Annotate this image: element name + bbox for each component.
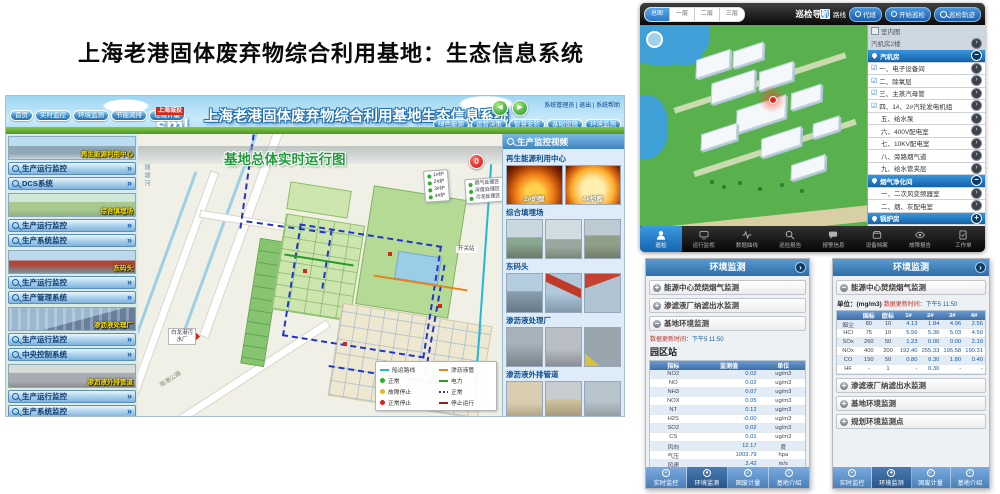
line2-cell: 0.00: [919, 339, 941, 345]
start-inspection-button[interactable]: 开始巡检: [885, 7, 931, 22]
screenshot-canvas: 上海老港固体废弃物综合利用基地：生态信息系统 首页实时监控环境监测节能减排垃圾计…: [0, 0, 1000, 494]
desktop-module-nav: 绿色能源运营决策智慧安防基础设施环境监测: [433, 119, 621, 130]
eu-std-cell: 1: [878, 366, 897, 372]
page-title: 上海老港固体废弃物综合利用基地：生态信息系统: [78, 36, 584, 68]
table-row: NO 0.02 ug/m3: [650, 379, 805, 388]
collapse-icon[interactable]: [971, 175, 982, 186]
camera-thumbnail[interactable]: [584, 219, 621, 259]
circle-arrow-icon: [971, 125, 982, 136]
table-row: NOX 0.05 ug/m3: [650, 397, 805, 406]
magnifier-icon: [12, 351, 19, 358]
env-monitor-panel-flue-gas: 环境监测› 能源中心焚烧烟气监测 单位：(mg/m3) 数据更新时间：下午5 1…: [832, 258, 990, 489]
checkpoint-row[interactable]: 六、400V配电室: [868, 125, 985, 138]
segment-option[interactable]: 三层: [720, 8, 744, 21]
camera-thumbnail[interactable]: [506, 219, 543, 259]
accordion-planned-points[interactable]: 规划环境监测点: [836, 414, 986, 429]
checkpoint-row[interactable]: 二、烟、灰配电室: [868, 200, 985, 213]
magnifier-icon: [12, 393, 19, 400]
chevron-right-icon: »: [127, 221, 132, 230]
eu-std-cell: 10: [878, 321, 897, 327]
status-dot-icon: [468, 182, 472, 186]
brand-abbr: sml: [156, 117, 200, 134]
expand-icon: [653, 302, 661, 310]
facility-photo: 再生能源利用中心: [8, 136, 136, 160]
expand-icon[interactable]: [971, 213, 982, 224]
chevron-right-icon: »: [127, 278, 132, 287]
nav-pill[interactable]: 节能减排: [111, 110, 147, 121]
mobile-topbar: 总图 一层 二层 三层 巡检导航 ✓ 路线 代班 开始巡检 巡检轨迹: [640, 3, 985, 25]
line1-cell: 5.56: [898, 330, 920, 336]
camera-thumbnail[interactable]: [545, 273, 582, 313]
map-label-switch-station: 开关站: [456, 246, 477, 253]
camera-group-title: 再生能源利用中心: [506, 153, 621, 164]
value-cell: 1003.79: [697, 452, 762, 458]
prev-arrow-button[interactable]: ◀: [492, 100, 508, 116]
panel-title: 环境监测: [893, 262, 929, 272]
boiler-status-box: 1#炉2#炉3#炉4#炉: [423, 169, 450, 203]
accordion-base-env[interactable]: 基地环境监测: [649, 316, 806, 331]
next-arrow-button[interactable]: ▶: [512, 100, 528, 116]
table-row: SO2 0.02 ug/m3: [650, 424, 805, 433]
collapse-icon[interactable]: [971, 50, 982, 61]
circle-arrow-icon: [971, 100, 982, 111]
value-cell: 0.05: [697, 398, 762, 404]
cloud-icon: [887, 469, 895, 477]
camera-thumbnail[interactable]: [584, 273, 621, 313]
tab-base-intro[interactable]: 基地介绍: [769, 467, 809, 488]
chevron-right-icon: »: [127, 164, 132, 173]
legend-label: 正常: [388, 376, 400, 385]
camera-thumbnail[interactable]: [545, 219, 582, 259]
accordion-flue-gas[interactable]: 能源中心焚烧烟气监测: [836, 280, 986, 295]
legend-item: 故障停止: [380, 387, 433, 396]
sidebar-button[interactable]: 生产系统监控»: [8, 405, 136, 416]
legend-swatch: [380, 369, 389, 371]
sidebar-button[interactable]: 生产系统监控»: [8, 234, 136, 247]
legend-swatch: [439, 402, 448, 404]
circle-arrow-icon: [971, 200, 982, 211]
indicator-cell: 气压: [650, 451, 697, 460]
unit-cell: ug/m3: [762, 425, 805, 431]
circle-arrow-icon: [971, 188, 982, 199]
tab-operation-monitor[interactable]: 运行监视: [682, 226, 725, 252]
facility-photo: 渗沥液处理厂: [8, 307, 136, 331]
camera-thumbnail[interactable]: [584, 327, 621, 367]
chevron-right-icon: »: [127, 179, 132, 188]
tab-waste-metering[interactable]: 固废计量: [912, 467, 951, 488]
check-icon: [744, 469, 752, 477]
table-row: H2S -0.00 ug/m3: [650, 415, 805, 424]
sidebar-button-label: 生产系统监控: [22, 235, 67, 246]
camera-thumbnail[interactable]: [545, 327, 582, 367]
line4-cell: 2.10: [963, 339, 985, 345]
pollutant-cell: NOx: [837, 348, 859, 354]
location-pin-icon: [871, 215, 878, 222]
checked-checkbox-icon: ☑: [871, 102, 877, 110]
area-row-boiler-house[interactable]: 锅炉房: [868, 213, 985, 226]
pollutant-cell: SOx: [837, 339, 859, 345]
camera-thumbnail[interactable]: 4#炉膛: [565, 165, 622, 205]
unit-cell: ug/m3: [762, 398, 805, 404]
tab-work-order[interactable]: 工作单: [942, 226, 985, 252]
inspector-location-marker: [769, 96, 777, 104]
legend-swatch: [380, 400, 385, 405]
line1-cell: 4.13: [898, 321, 920, 327]
legend-label: 船运路线: [392, 365, 415, 374]
panel-header: 环境监测›: [833, 259, 989, 276]
nav-pill[interactable]: 智慧安防: [509, 119, 545, 130]
value-cell: 0.02: [697, 425, 762, 431]
sidebar-button[interactable]: 中央控制系统»: [8, 348, 136, 361]
camera-thumbnail-label: 2#炉膛: [507, 193, 562, 203]
nav-pill[interactable]: 环境监测: [585, 119, 621, 130]
nav-pill[interactable]: 环境监测: [73, 110, 109, 121]
panel-footer-tabs: 实时监控 环境监测 固废计量 基地介绍: [646, 467, 809, 488]
chevron-right-icon: »: [127, 392, 132, 401]
sidebar-button[interactable]: 生产运行监控»: [8, 162, 136, 175]
national-std-cell: -: [859, 366, 878, 372]
panel-title: 环境监测: [709, 262, 745, 272]
inspection-track-button[interactable]: 巡检轨迹: [934, 7, 981, 22]
checkpoint-row[interactable]: ☑三、主蒸汽母管: [868, 88, 985, 101]
unit-cell: ug/m3: [762, 407, 805, 413]
line2-cell: 0.30: [919, 366, 941, 372]
line3-cell: 0.00: [941, 339, 963, 345]
dot-icon: [855, 11, 861, 17]
checkpoint-row[interactable]: 一、二次风变频器室: [868, 188, 985, 201]
route-checkbox-label: 路线: [833, 9, 846, 19]
status-dot-icon: [469, 196, 473, 200]
camera-thumbnail-label: 4#炉膛: [566, 193, 621, 203]
mobile-tabbar: 巡检 运行监视 数据曲线 巡检报告 报警信息 设备档案 故障报告 工作单: [640, 226, 985, 252]
legend-label: 正常停止: [388, 398, 411, 407]
line2-cell: 1.84: [919, 321, 941, 327]
tab-waste-metering[interactable]: 固废计量: [728, 467, 769, 488]
sidebar-button-label: 生产运行监控: [22, 163, 67, 174]
table-row: SOx 260 50 1.23 0.00 0.00 2.10: [837, 338, 985, 347]
line4-cell: 4.50: [963, 330, 985, 336]
compass-icon[interactable]: [646, 31, 663, 48]
accordion-flue-gas[interactable]: 能源中心焚烧烟气监测: [649, 280, 806, 295]
map-title: 基地总体实时运行图: [224, 148, 346, 168]
checkpoint-row[interactable]: ☑一、电子设备间: [868, 63, 985, 76]
facility-label: 渗沥液外排管道: [88, 376, 134, 386]
chevron-right-icon: »: [127, 335, 132, 344]
national-std-cell: 260: [859, 339, 878, 345]
unit-cell: ug/m3: [762, 371, 805, 377]
legend-item: 船运路线: [380, 365, 433, 374]
checked-checkbox-icon: ☑: [871, 77, 877, 85]
line1-cell: -: [898, 366, 920, 372]
sidebar-button[interactable]: 生产运行监控»: [8, 390, 136, 403]
pollutant-cell: HF: [837, 366, 859, 372]
expand-icon: [840, 400, 848, 408]
status-dot-icon: [469, 189, 473, 193]
env-monitor-panel-station: 环境监测› 能源中心焚烧烟气监测 渗滤液厂纳滤出水监测 基地环境监测 数据更新时…: [645, 258, 810, 489]
station-name: 园区站: [650, 345, 805, 358]
segment-option[interactable]: 一层: [670, 8, 695, 21]
base-realtime-map: 随塘河 南港公路 白龙港污水厂 开关站 基地总体实时运行图 0 1#炉2#炉3#…: [138, 134, 502, 416]
magnifier-icon: [12, 180, 19, 187]
accordion-nanofiltration[interactable]: 渗滤液厂纳滤出水监测: [836, 378, 986, 393]
value-cell: -0.00: [697, 416, 762, 422]
accordion-base-env[interactable]: 基地环境监测: [836, 396, 986, 411]
sidebar-button-label: 生产运行监控: [22, 334, 67, 345]
tab-data-curve[interactable]: 数据曲线: [725, 226, 768, 252]
status-dot-icon: [429, 195, 433, 199]
unit-cell: ug/m3: [762, 380, 805, 386]
circle-arrow-icon: [971, 63, 982, 74]
map-label-river: 随塘河: [142, 164, 151, 188]
sidebar-button-label: 生产运行监控: [22, 277, 67, 288]
nav-pill[interactable]: 绿色能源: [433, 119, 469, 130]
sidebar-button[interactable]: 生产运行监控»: [8, 219, 136, 232]
legend-item: 电力: [439, 376, 492, 385]
sidebar-button-label: 生产运行监控: [22, 391, 67, 402]
area-row-turbine-hall[interactable]: 汽机房: [868, 50, 985, 63]
line2-cell: 0.30: [919, 357, 941, 363]
indicator-cell: NO: [650, 380, 697, 386]
sidebar-section-pipeline: 渗沥液外排管道 生产运行监控» 生产系统监控»: [8, 364, 136, 416]
legend-item: 渗沥液管: [439, 365, 492, 374]
tab-inspection-report[interactable]: 巡检报告: [769, 226, 812, 252]
line1-cell: 1.23: [898, 339, 920, 345]
sidebar-section-landfill: 综合填埋场 生产运行监控» 生产系统监控»: [8, 193, 136, 247]
header-arrows: ◀ ▶: [492, 100, 528, 116]
pollutant-cell: 烟尘: [837, 320, 859, 329]
forward-arrow-button[interactable]: ›: [795, 262, 806, 273]
chevron-right-icon: »: [127, 407, 132, 416]
view-segmented-control: 总图 一层 二层 三层: [644, 7, 745, 22]
eu-std-cell: 50: [878, 339, 897, 345]
desktop-header: 首页实时监控环境监测节能减排垃圾计量 上海城投 sml 上海老港固体废弃物综合利…: [6, 96, 624, 134]
legend-swatch: [439, 391, 448, 393]
camera-groups: 再生能源利用中心 2#炉膛 4#炉膛 综合填埋场 东码头: [503, 149, 624, 416]
circle-arrow-icon: [971, 163, 982, 174]
flue-gas-table: 国标 欧标 1# 2# 3# 4# 烟尘 80 10 4.13: [836, 310, 986, 375]
value-cell: 0.12: [697, 407, 762, 413]
tab-alarm-info[interactable]: 报警信息: [812, 226, 855, 252]
tab-inspection[interactable]: 巡检: [640, 226, 682, 252]
indicator-cell: NT: [650, 407, 697, 413]
circle-arrow-icon: [971, 38, 982, 49]
line3-cell: -: [941, 366, 963, 372]
legend-label: 停止运行: [451, 398, 474, 407]
collapse-icon: [840, 284, 848, 292]
unit-update-line: 单位：(mg/m3) 数据更新时间：下午5 11:50: [837, 298, 985, 308]
sidebar-button[interactable]: DCS系统»: [8, 177, 136, 190]
tab-fault-report[interactable]: 故障报告: [898, 226, 941, 252]
location-pin-icon: [871, 177, 878, 184]
camera-thumbnail[interactable]: 2#炉膛: [506, 165, 563, 205]
brand-logo: 上海城投 sml: [156, 99, 200, 134]
magnifier-icon: [12, 294, 19, 301]
expand-icon: [653, 284, 661, 292]
eu-std-cell: 200: [878, 348, 897, 354]
user-links[interactable]: 系统管理员 | 退出 | 系统帮助: [544, 100, 620, 109]
sidebar-button[interactable]: 生产管理系统»: [8, 291, 136, 304]
boiler-status-row: 4#炉: [429, 192, 446, 200]
indicator-cell: SO2: [650, 425, 697, 431]
status-dot-icon: [428, 181, 432, 185]
shift-button[interactable]: 代班: [849, 7, 882, 22]
table-header-row: 指标 监测值 单位: [650, 361, 805, 370]
value-cell: 0.07: [697, 389, 762, 395]
indicator-cell: NO2: [650, 371, 697, 377]
table-row: HF - 1 - 0.30 - -: [837, 365, 985, 374]
value-cell: 12.17: [697, 443, 762, 449]
location-pin-icon: [871, 52, 878, 59]
camera-thumbnail[interactable]: [506, 381, 543, 416]
indicator-cell: CS: [650, 434, 697, 440]
checked-checkbox-icon: ☑: [871, 89, 877, 97]
indicator-cell: NH3: [650, 389, 697, 395]
map-label-road: 南港公路: [157, 368, 182, 389]
line4-cell: -: [963, 366, 985, 372]
tab-base-intro[interactable]: 基地介绍: [951, 467, 989, 488]
zone-label: 污泥处理区: [475, 193, 500, 202]
checkpoint-row[interactable]: 七、10KV配电室: [868, 138, 985, 151]
desktop-app-window: 首页实时监控环境监测节能减排垃圾计量 上海城投 sml 上海老港固体废弃物综合利…: [5, 95, 625, 417]
camera-thumbnail[interactable]: [584, 381, 621, 416]
panel-header: 环境监测›: [646, 259, 809, 276]
forward-arrow-button[interactable]: ›: [975, 262, 986, 273]
legend-label: 渗沥液管: [451, 365, 474, 374]
sidebar-button[interactable]: 生产运行监控»: [8, 333, 136, 346]
nav-pill[interactable]: 实时监控: [35, 110, 71, 121]
checkpoint-row[interactable]: ☑四、1#、2#汽轮发电机组: [868, 100, 985, 113]
camera-thumbnail[interactable]: [506, 273, 543, 313]
check-icon: [927, 469, 935, 477]
nav-pill[interactable]: 基础设施: [547, 119, 583, 130]
magnifier-icon: [12, 222, 19, 229]
facility-photo: 东码头: [8, 250, 136, 274]
legend-item: 正常: [380, 376, 433, 385]
magnifier-icon: [12, 336, 19, 343]
legend-label: 故障停止: [388, 387, 411, 396]
value-cell: 0.02: [697, 371, 762, 377]
indicator-cell: H2S: [650, 416, 697, 422]
sidebar-button-label: 生产系统监控: [22, 406, 67, 416]
national-std-cell: 400: [859, 348, 878, 354]
line3-cell: 1.80: [941, 357, 963, 363]
line4-cell: 190.31: [963, 348, 985, 354]
circle-arrow-icon: [971, 150, 982, 161]
unit-cell: hpa: [762, 452, 805, 458]
nav-pill[interactable]: 首页: [10, 110, 33, 121]
checkpoint-row[interactable]: 九、给水管夹层: [868, 163, 985, 176]
campus-3d-map[interactable]: [640, 25, 867, 226]
line3-cell: 195.58: [941, 348, 963, 354]
status-dot-icon: [427, 174, 431, 178]
facility-label: 再生能源利用中心: [81, 148, 133, 158]
tab-env-monitor[interactable]: 环境监测: [687, 467, 728, 488]
facility-photo: 渗沥液外排管道: [8, 364, 136, 388]
camera-group-title: 渗沥液外排管道: [506, 369, 621, 380]
facility-label: 综合填埋场: [101, 205, 134, 215]
dot-icon: [891, 11, 897, 17]
floor-selector[interactable]: 汽机房2楼: [868, 38, 985, 51]
legend-item: 正常: [439, 387, 492, 396]
line3-cell: 5.03: [941, 330, 963, 336]
unit-cell: 度: [762, 442, 805, 451]
table-row: NH3 0.07 ug/m3: [650, 388, 805, 397]
inspection-point-list: 室内图 汽机房2楼 汽机房 ☑一、电子设备间 ☑二、除氧层 ☑三、主蒸汽母管 ☑…: [867, 25, 985, 226]
national-std-cell: 80: [859, 321, 878, 327]
mobile-inspection-app: 总图 一层 二层 三层 巡检导航 ✓ 路线 代班 开始巡检 巡检轨迹: [640, 3, 985, 252]
checkpoint-row[interactable]: 八、旁路烟气道: [868, 150, 985, 163]
mobile-app-title: 巡检导航: [795, 8, 829, 20]
panel-footer-tabs: 实时监控 环境监测 固废计量 基地介绍: [833, 467, 989, 488]
map-label-sewage-plant: 白龙港污水厂: [168, 328, 196, 345]
tab-equipment-archive[interactable]: 设备档案: [855, 226, 898, 252]
magnifier-icon: [12, 408, 19, 415]
camera-panel-header: 生产监控视频: [503, 134, 624, 149]
value-cell: 0.01: [697, 434, 762, 440]
zone-status-box: 烟气处理区深度处理区污泥处理区: [464, 177, 502, 205]
camera-panel: 生产监控视频 再生能源利用中心 2#炉膛 4#炉膛 综合填埋场 东码头: [502, 134, 624, 416]
info-icon: [785, 469, 793, 477]
tab-realtime-monitor[interactable]: 实时监控: [833, 467, 872, 488]
sidebar-button[interactable]: 生产运行监控»: [8, 276, 136, 289]
checked-checkbox-icon: ☑: [871, 64, 877, 72]
circle-arrow-icon: [971, 113, 982, 124]
collapse-icon: [653, 320, 661, 328]
legend-swatch: [380, 389, 385, 394]
camera-thumbnail[interactable]: [545, 381, 582, 416]
legend-swatch: [439, 369, 448, 371]
legend-swatch: [439, 380, 448, 382]
segment-option[interactable]: 总图: [645, 8, 670, 21]
national-std-cell: 75: [859, 330, 878, 336]
tab-realtime-monitor[interactable]: 实时监控: [646, 467, 687, 488]
line1-cell: 192.40: [898, 348, 920, 354]
area-row-flue-gas[interactable]: 烟气净化间: [868, 175, 985, 188]
legend-item: 正常停止: [380, 398, 433, 407]
accordion-nanofiltration[interactable]: 渗滤液厂纳滤出水监测: [649, 298, 806, 313]
circle-arrow-icon: [971, 138, 982, 149]
checkpoint-row[interactable]: ☑二、除氧层: [868, 75, 985, 88]
sidebar-button-label: 中央控制系统: [22, 349, 67, 360]
camera-group-title: 综合填埋场: [506, 207, 621, 218]
nav-pill[interactable]: 运营决策: [471, 119, 507, 130]
tab-env-monitor[interactable]: 环境监测: [872, 467, 911, 488]
status-dot-icon: [428, 188, 432, 192]
alert-count-badge[interactable]: 0: [469, 154, 484, 169]
line2-cell: 5.36: [919, 330, 941, 336]
sidebar-button-label: 生产运行监控: [22, 220, 67, 231]
facility-label: 渗沥液处理厂: [94, 319, 133, 329]
chevron-right-icon: »: [127, 293, 132, 302]
legend-item: 停止运行: [439, 398, 492, 407]
sidebar-section-energy: 再生能源利用中心 生产运行监控» DCS系统»: [8, 136, 136, 190]
expand-icon: [840, 418, 848, 426]
info-icon: [966, 469, 974, 477]
table-row: NOx 400 200 192.40 255.33 195.58 190.31: [837, 347, 985, 356]
update-time-line: 数据更新时间：下午5 11:50: [650, 334, 805, 343]
magnifier-icon: [12, 165, 19, 172]
circle-arrow-icon: [971, 75, 982, 86]
camera-thumbnail[interactable]: [506, 327, 543, 367]
facility-label: 东码头: [114, 262, 134, 272]
checkpoint-row[interactable]: 五、给水泵: [868, 113, 985, 126]
magnifier-icon: [12, 279, 19, 286]
table-row: NT 0.12 ug/m3: [650, 406, 805, 415]
segment-option[interactable]: 二层: [695, 8, 720, 21]
indoor-map-toggle[interactable]: 室内图: [868, 25, 985, 38]
eu-std-cell: 50: [878, 357, 897, 363]
chevron-right-icon: »: [127, 236, 132, 245]
